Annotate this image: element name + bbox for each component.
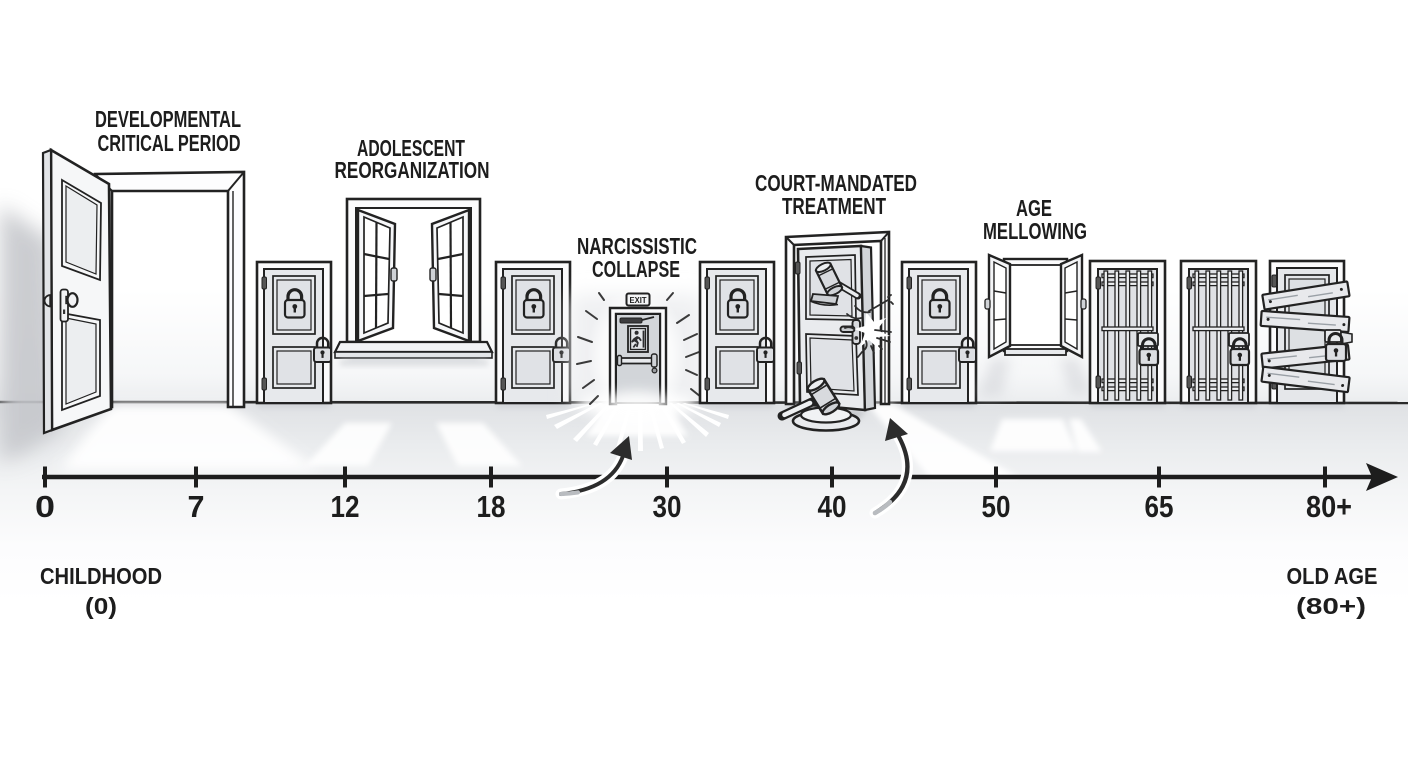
svg-text:18: 18 — [477, 489, 506, 524]
svg-text:30: 30 — [653, 489, 682, 524]
svg-text:65: 65 — [1145, 489, 1174, 524]
svg-text:40: 40 — [818, 489, 847, 524]
svg-text:7: 7 — [188, 489, 205, 524]
svg-text:CRITICAL PERIOD: CRITICAL PERIOD — [98, 130, 241, 156]
svg-text:CHILDHOOD: CHILDHOOD — [40, 563, 162, 589]
svg-text:80+: 80+ — [1306, 489, 1352, 524]
svg-text:(80+): (80+) — [1296, 593, 1366, 619]
svg-text:50: 50 — [982, 489, 1011, 524]
svg-text:EXIT: EXIT — [630, 295, 648, 305]
svg-text:DEVELOPMENTAL: DEVELOPMENTAL — [95, 106, 241, 132]
svg-text:12: 12 — [331, 489, 360, 524]
svg-text:REORGANIZATION: REORGANIZATION — [335, 157, 490, 183]
svg-text:OLD AGE: OLD AGE — [1287, 563, 1378, 589]
svg-text:TREATMENT: TREATMENT — [782, 193, 886, 219]
svg-text:(0): (0) — [85, 593, 117, 619]
svg-text:0: 0 — [35, 489, 55, 524]
svg-text:COLLAPSE: COLLAPSE — [592, 256, 680, 282]
svg-text:MELLOWING: MELLOWING — [983, 218, 1087, 244]
